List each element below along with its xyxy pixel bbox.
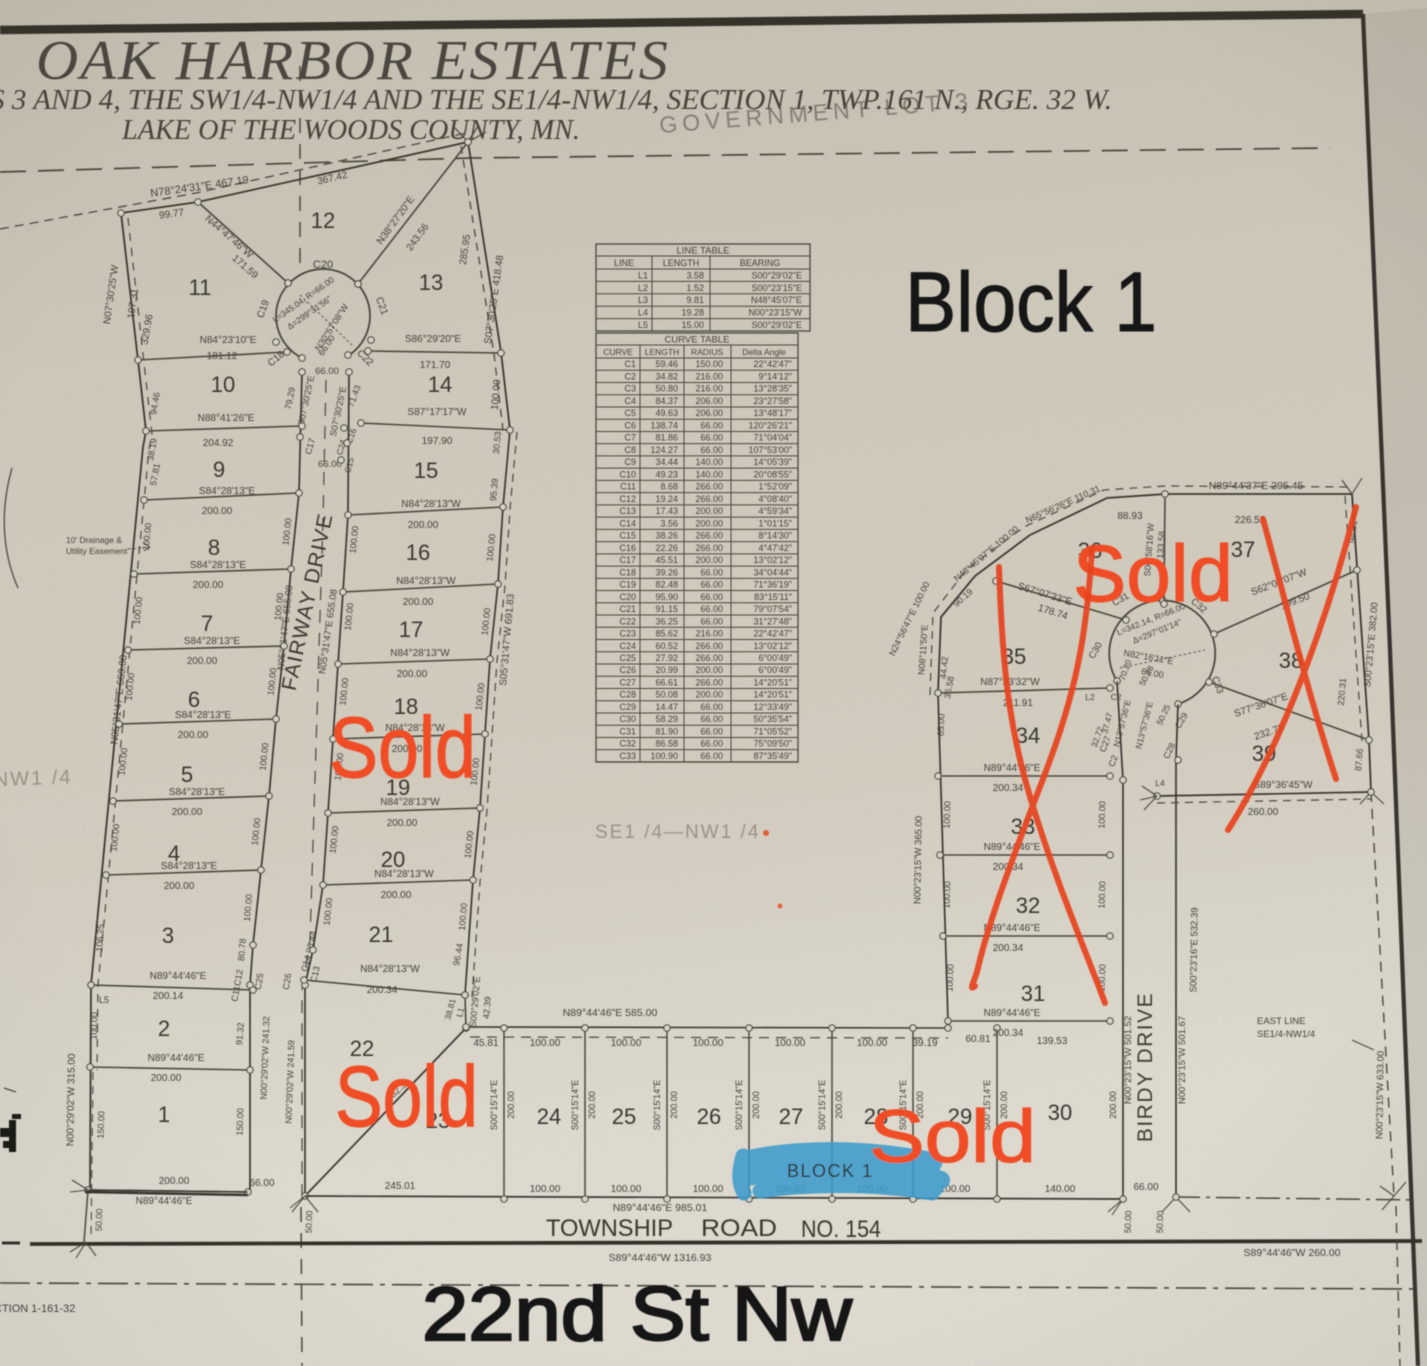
svg-text:S00°15'14"E: S00°15'14"E	[570, 1080, 580, 1131]
svg-text:81.86: 81.86	[655, 433, 678, 443]
svg-text:150.00: 150.00	[235, 1108, 246, 1136]
svg-text:15.00: 15.00	[681, 320, 704, 330]
svg-text:106.25: 106.25	[94, 924, 105, 952]
svg-text:S87°17'17"W: S87°17'17"W	[408, 407, 467, 418]
svg-text:8.68: 8.68	[660, 482, 678, 492]
svg-text:124.27: 124.27	[650, 445, 678, 455]
svg-text:N00°23'15"W 633.00: N00°23'15"W 633.00	[1374, 1051, 1387, 1139]
svg-text:100.00: 100.00	[857, 1038, 888, 1049]
svg-text:66.00: 66.00	[700, 616, 723, 626]
svg-text:260.00: 260.00	[1248, 807, 1279, 818]
svg-text:200.00: 200.00	[1108, 1091, 1118, 1119]
svg-text:150.00: 150.00	[695, 359, 723, 369]
svg-text:N84°23'10"E: N84°23'10"E	[200, 335, 257, 346]
svg-text:266.00: 266.00	[695, 543, 723, 553]
svg-text:N87°33'32"W: N87°33'32"W	[980, 677, 1040, 688]
svg-text:S89°44'46"W 260.00: S89°44'46"W 260.00	[1244, 1247, 1341, 1259]
svg-text:10' Drainage &: 10' Drainage &	[66, 535, 122, 545]
svg-text:N48°45'07"E: N48°45'07"E	[751, 295, 802, 305]
svg-text:N84°28'13"W: N84°28'13"W	[396, 576, 456, 587]
svg-text:S84°28'13"E: S84°28'13"E	[184, 636, 240, 647]
svg-text:C12: C12	[619, 494, 636, 504]
svg-text:6: 6	[188, 687, 200, 712]
svg-text:266.00: 266.00	[695, 494, 723, 504]
svg-text:86.58: 86.58	[655, 739, 678, 749]
svg-text:42.39: 42.39	[481, 996, 493, 1019]
svg-text:91.15: 91.15	[655, 604, 678, 614]
svg-text:N84°28'13"W: N84°28'13"W	[360, 964, 420, 975]
svg-text:12: 12	[311, 208, 335, 233]
svg-text:216.00: 216.00	[695, 384, 723, 394]
svg-text:N84°28'13"W: N84°28'13"W	[401, 499, 461, 510]
svg-text:140.00: 140.00	[1045, 1184, 1076, 1195]
svg-text:BLOCK 1: BLOCK 1	[787, 1161, 874, 1181]
svg-text:27: 27	[779, 1104, 803, 1129]
svg-text:200.00: 200.00	[834, 1091, 844, 1119]
svg-text:66.00: 66.00	[315, 366, 339, 377]
svg-text:200.00: 200.00	[408, 520, 439, 531]
svg-text:S00°29'02"E: S00°29'02"E	[751, 320, 802, 330]
svg-text:85.62: 85.62	[655, 629, 678, 639]
svg-text:N89°44'46"E 985.01: N89°44'46"E 985.01	[613, 1202, 708, 1214]
svg-text:L3: L3	[638, 295, 648, 305]
svg-text:266.00: 266.00	[695, 531, 723, 541]
svg-text:20.99: 20.99	[655, 665, 678, 675]
svg-text:66.61: 66.61	[655, 677, 678, 687]
svg-text:C23: C23	[619, 629, 636, 639]
svg-text:C20: C20	[313, 259, 333, 271]
svg-text:66.00: 66.00	[700, 726, 723, 736]
svg-text:49.63: 49.63	[655, 408, 678, 418]
svg-text:31°27'48": 31°27'48"	[753, 616, 792, 626]
svg-text:82.48: 82.48	[655, 580, 678, 590]
svg-text:200.00: 200.00	[751, 1091, 761, 1119]
svg-text:Sold: Sold	[869, 1095, 1036, 1178]
svg-text:10: 10	[211, 372, 235, 397]
svg-text:N88°41'26"E: N88°41'26"E	[198, 413, 255, 424]
svg-text:14°20'51": 14°20'51"	[753, 677, 792, 687]
svg-text:C27: C27	[619, 677, 636, 687]
svg-text:50.00: 50.00	[304, 1210, 315, 1233]
svg-text:C4: C4	[624, 396, 636, 406]
svg-text:L4: L4	[1155, 778, 1165, 788]
svg-text:200.00: 200.00	[187, 656, 218, 667]
svg-text:14°20'51": 14°20'51"	[753, 690, 792, 700]
svg-text:N89°44'46"E: N89°44'46"E	[984, 842, 1041, 853]
svg-text:L4: L4	[638, 308, 648, 318]
svg-text:66.00: 66.00	[700, 592, 723, 602]
svg-text:C2: C2	[1111, 692, 1122, 702]
svg-text:Delta Angle: Delta Angle	[742, 347, 786, 357]
svg-text:LENGTH: LENGTH	[663, 258, 700, 268]
svg-text:9.81: 9.81	[686, 295, 704, 305]
svg-text:138.74: 138.74	[650, 420, 678, 430]
svg-text:1°52'09": 1°52'09"	[758, 482, 792, 492]
svg-text:4°59'34": 4°59'34"	[758, 506, 792, 516]
svg-text:66.00: 66.00	[700, 702, 723, 712]
svg-text:200.00: 200.00	[506, 1091, 516, 1119]
svg-text:C13: C13	[619, 506, 636, 516]
svg-text:C2: C2	[624, 371, 636, 381]
svg-text:N89°44'46"E 585.00: N89°44'46"E 585.00	[563, 1007, 658, 1019]
svg-text:9: 9	[213, 457, 225, 482]
svg-text:S00°15'14"E: S00°15'14"E	[489, 1080, 499, 1131]
svg-text:22°42'47": 22°42'47"	[753, 629, 792, 639]
svg-text:S00°15'14"E: S00°15'14"E	[652, 1080, 662, 1131]
svg-text:C30: C30	[619, 714, 636, 724]
svg-text:22nd St Nw: 22nd St Nw	[422, 1272, 853, 1357]
svg-text:NW1 /4: NW1 /4	[0, 766, 73, 791]
svg-text:C14: C14	[619, 518, 636, 528]
svg-text:S00°23'15"E: S00°23'15"E	[751, 283, 802, 293]
svg-text:C3: C3	[624, 384, 636, 394]
svg-text:8: 8	[208, 535, 220, 560]
svg-text:S84°28'13"E: S84°28'13"E	[199, 486, 255, 497]
svg-text:245.01: 245.01	[385, 1181, 416, 1192]
svg-text:9°14'12": 9°14'12"	[758, 371, 792, 381]
svg-text:200.34: 200.34	[993, 943, 1024, 954]
svg-text:Sold: Sold	[1073, 529, 1233, 618]
svg-text:N84°28'13"W: N84°28'13"W	[374, 869, 434, 880]
svg-text:200.00: 200.00	[695, 506, 723, 516]
svg-text:6°00'49": 6°00'49"	[758, 665, 792, 675]
svg-text:C24: C24	[619, 641, 636, 651]
svg-text:95.90: 95.90	[655, 592, 678, 602]
svg-text:ROAD: ROAD	[701, 1215, 777, 1242]
svg-text:C11: C11	[620, 482, 636, 492]
svg-text:200.14: 200.14	[153, 991, 184, 1002]
svg-text:81.90: 81.90	[655, 726, 678, 736]
svg-text:206.00: 206.00	[695, 396, 723, 406]
svg-text:59.46: 59.46	[655, 359, 678, 369]
svg-text:216.00: 216.00	[695, 371, 723, 381]
svg-text:181.12: 181.12	[207, 351, 238, 362]
svg-text:60.81: 60.81	[965, 1034, 990, 1045]
svg-text:66.00: 66.00	[700, 433, 723, 443]
svg-text:66.00: 66.00	[1133, 1182, 1158, 1193]
svg-text:140.00: 140.00	[695, 469, 723, 479]
svg-text:C26: C26	[619, 665, 636, 675]
svg-text:17: 17	[399, 617, 423, 642]
svg-text:200.00: 200.00	[397, 669, 428, 680]
svg-text:200.00: 200.00	[387, 818, 418, 829]
svg-text:3.56: 3.56	[660, 518, 678, 528]
svg-text:34.44: 34.44	[655, 457, 678, 467]
svg-text:C8: C8	[624, 445, 636, 455]
svg-text:OAK HARBOR ESTATES: OAK HARBOR ESTATES	[36, 30, 670, 92]
svg-text:S84°28'13"E: S84°28'13"E	[175, 710, 231, 721]
svg-text:3.58: 3.58	[686, 270, 704, 280]
svg-text:13°02'12": 13°02'12"	[753, 641, 792, 651]
svg-text:71°04'04": 71°04'04"	[753, 433, 792, 443]
svg-text:87°35'49": 87°35'49"	[753, 751, 792, 761]
svg-text:12°33'49": 12°33'49"	[753, 702, 792, 712]
svg-text:L2: L2	[638, 283, 648, 293]
svg-text:20°08'55": 20°08'55"	[753, 469, 792, 479]
svg-text:5: 5	[181, 762, 193, 787]
svg-text:100.00: 100.00	[89, 1012, 100, 1040]
svg-text:200.00: 200.00	[695, 555, 723, 565]
svg-text:S00°15'14"E: S00°15'14"E	[734, 1080, 744, 1131]
svg-text:79°07'54": 79°07'54"	[753, 604, 792, 614]
svg-text:66.00: 66.00	[700, 567, 723, 577]
svg-text:Sold: Sold	[329, 700, 476, 796]
svg-text:200.00: 200.00	[403, 597, 434, 608]
svg-text:S84°28'13"E: S84°28'13"E	[161, 861, 217, 872]
svg-text:Block 1: Block 1	[905, 255, 1157, 349]
svg-text:200.00: 200.00	[172, 807, 203, 818]
svg-text:39.26: 39.26	[655, 567, 678, 577]
svg-text:83°15'11": 83°15'11"	[754, 592, 792, 602]
svg-text:23°27'58": 23°27'58"	[753, 396, 792, 406]
svg-text:200.00: 200.00	[669, 1091, 679, 1119]
svg-text:100.00: 100.00	[530, 1038, 561, 1049]
svg-text:50.00: 50.00	[1123, 1210, 1134, 1233]
svg-text:C5: C5	[624, 408, 636, 418]
svg-text:49.23: 49.23	[655, 469, 678, 479]
svg-text:266.00: 266.00	[695, 677, 723, 687]
svg-text:21: 21	[369, 922, 393, 947]
svg-text:66.00: 66.00	[700, 420, 723, 430]
svg-text:CTION 1-161-32: CTION 1-161-32	[0, 1303, 75, 1315]
svg-text:N89°44'46"E: N89°44'46"E	[984, 1008, 1041, 1019]
svg-text:N89°44'37"E 295.45: N89°44'37"E 295.45	[1209, 480, 1304, 492]
svg-text:S00°15'14"E: S00°15'14"E	[817, 1080, 827, 1131]
svg-text:C18: C18	[619, 567, 636, 577]
svg-text:17.43: 17.43	[655, 506, 678, 516]
svg-text:31: 31	[1021, 981, 1045, 1006]
svg-text:S84°28'13"E: S84°28'13"E	[190, 560, 246, 571]
svg-text:80.78: 80.78	[236, 938, 248, 961]
svg-text:50°35'54": 50°35'54"	[753, 714, 792, 724]
svg-text:66.00: 66.00	[700, 604, 723, 614]
svg-text:S89°36'45"W: S89°36'45"W	[1254, 780, 1313, 791]
svg-text:N00°23'15"W 501.52: N00°23'15"W 501.52	[1123, 1016, 1134, 1104]
svg-text:266.00: 266.00	[695, 482, 723, 492]
svg-text:88.93: 88.93	[1117, 511, 1142, 522]
svg-text:L5: L5	[99, 995, 109, 1005]
svg-text:22°42'47": 22°42'47"	[753, 359, 792, 369]
svg-text:200.00: 200.00	[193, 580, 224, 591]
svg-text:3: 3	[162, 923, 174, 948]
svg-text:11: 11	[189, 275, 212, 300]
svg-text:15: 15	[414, 458, 438, 483]
svg-text:C15: C15	[619, 531, 636, 541]
svg-text:1.52: 1.52	[686, 283, 704, 293]
svg-text:200.00: 200.00	[695, 518, 723, 528]
svg-text:C10: C10	[619, 469, 636, 479]
svg-text:N89°44'46"E: N89°44'46"E	[984, 763, 1041, 774]
svg-text:EAST LINE: EAST LINE	[1257, 1016, 1305, 1027]
svg-text:60.52: 60.52	[655, 641, 678, 651]
svg-text:N89°44'46"E: N89°44'46"E	[150, 971, 207, 982]
svg-text:204.92: 204.92	[203, 438, 234, 449]
svg-text:19.28: 19.28	[681, 308, 704, 318]
svg-text:26: 26	[697, 1104, 721, 1129]
svg-text:200.00: 200.00	[695, 665, 723, 675]
svg-text:7: 7	[201, 611, 213, 636]
svg-text:45.81: 45.81	[473, 1038, 498, 1049]
svg-text:139.53: 139.53	[1037, 1036, 1068, 1047]
svg-text:1°01'15": 1°01'15"	[758, 518, 792, 528]
svg-text:6°00'49": 6°00'49"	[758, 653, 792, 663]
svg-text:S00°23'16"E 532.39: S00°23'16"E 532.39	[1188, 907, 1200, 992]
svg-text:100.00: 100.00	[611, 1184, 642, 1195]
svg-text:N89°44'46"E: N89°44'46"E	[136, 1196, 193, 1207]
svg-text:LINE TABLE: LINE TABLE	[677, 246, 730, 257]
svg-text:RADIUS: RADIUS	[691, 347, 723, 357]
svg-text:27.92: 27.92	[655, 653, 678, 663]
svg-text:25: 25	[612, 1104, 636, 1129]
svg-text:TOWNSHIP: TOWNSHIP	[546, 1215, 673, 1242]
svg-text:SE1/4-NW1/4: SE1/4-NW1/4	[1257, 1029, 1315, 1040]
svg-text:200.00: 200.00	[159, 1176, 190, 1187]
svg-text:SE1 /4—NW1 /4: SE1 /4—NW1 /4	[595, 822, 760, 843]
svg-text:C29: C29	[619, 702, 636, 712]
svg-text:N00°23'15"W: N00°23'15"W	[748, 308, 802, 318]
svg-text:100.00: 100.00	[942, 881, 953, 909]
svg-text:N84°28'13"W: N84°28'13"W	[390, 648, 450, 659]
svg-text:13: 13	[419, 270, 443, 295]
svg-text:39.19: 39.19	[912, 1038, 937, 1049]
svg-text:C16: C16	[619, 543, 636, 553]
svg-text:C20: C20	[619, 592, 636, 602]
svg-text:30: 30	[1048, 1100, 1072, 1125]
svg-text:14.47: 14.47	[655, 702, 678, 712]
svg-text:13°48'17": 13°48'17"	[753, 408, 792, 418]
svg-text:30.53: 30.53	[491, 431, 503, 454]
svg-text:66.00: 66.00	[700, 739, 723, 749]
svg-text:C9: C9	[624, 457, 636, 467]
svg-text:L2: L2	[1085, 692, 1095, 702]
svg-text:107°53'00": 107°53'00"	[748, 445, 792, 455]
svg-text:16: 16	[406, 540, 430, 565]
svg-text:37: 37	[1231, 537, 1255, 562]
svg-text:100.90: 100.90	[650, 751, 678, 761]
svg-text:84.37: 84.37	[655, 396, 678, 406]
svg-text:34°04'44": 34°04'44"	[753, 567, 792, 577]
svg-text:22.26: 22.26	[655, 543, 678, 553]
svg-text:100.00: 100.00	[693, 1038, 724, 1049]
svg-text:NO. 154: NO. 154	[801, 1216, 881, 1243]
svg-text:200.00: 200.00	[178, 730, 209, 741]
svg-text:216.00: 216.00	[695, 629, 723, 639]
svg-text:S00°29'02"E: S00°29'02"E	[751, 270, 802, 280]
svg-text:58.29: 58.29	[655, 714, 678, 724]
svg-text:C7: C7	[624, 433, 636, 443]
svg-text:200.00: 200.00	[164, 881, 195, 892]
svg-text:71°36'19": 71°36'19"	[753, 580, 792, 590]
svg-text:171.70: 171.70	[420, 360, 451, 371]
svg-text:200.34: 200.34	[993, 1028, 1024, 1039]
svg-text:C22: C22	[619, 616, 636, 626]
svg-text:2: 2	[158, 1016, 170, 1041]
svg-text:100.00: 100.00	[530, 1184, 561, 1195]
svg-text:C17: C17	[619, 555, 636, 565]
svg-text:206.00: 206.00	[695, 408, 723, 418]
svg-text:LAKE OF THE WOODS COUNTY, MN.: LAKE OF THE WOODS COUNTY, MN.	[121, 114, 580, 146]
svg-text:71°05'52": 71°05'52"	[753, 726, 792, 736]
svg-text:13°28'35": 13°28'35"	[753, 384, 792, 394]
svg-text:100.00: 100.00	[775, 1038, 806, 1049]
svg-text:N00°23'15"W 365.00: N00°23'15"W 365.00	[912, 816, 925, 904]
svg-text:91.32: 91.32	[234, 1022, 246, 1045]
svg-text:75°09'50": 75°09'50"	[753, 739, 792, 749]
svg-text:197.90: 197.90	[422, 436, 453, 447]
svg-text:14: 14	[428, 372, 452, 397]
svg-text:CURVE TABLE: CURVE TABLE	[665, 335, 730, 346]
svg-text:C31: C31	[619, 726, 636, 736]
svg-text:4°08'40": 4°08'40"	[758, 494, 792, 504]
svg-text:200.00: 200.00	[202, 506, 233, 517]
svg-text:100.00: 100.00	[611, 1038, 642, 1049]
svg-text:95.39: 95.39	[488, 478, 500, 501]
svg-text:65.00: 65.00	[936, 713, 947, 736]
svg-text:200.00: 200.00	[151, 1073, 182, 1084]
svg-text:36.25: 36.25	[655, 616, 678, 626]
svg-text:S86°29'20"E: S86°29'20"E	[405, 334, 461, 345]
svg-text:C32: C32	[619, 739, 636, 749]
svg-text:66.00: 66.00	[249, 1178, 274, 1189]
svg-text:N84°28'13"W: N84°28'13"W	[380, 797, 440, 808]
svg-text:4°47'42": 4°47'42"	[758, 543, 792, 553]
svg-text:24: 24	[537, 1104, 561, 1129]
svg-text:266.00: 266.00	[695, 653, 723, 663]
svg-text:C33: C33	[619, 751, 636, 761]
svg-text:66.00: 66.00	[700, 714, 723, 724]
svg-text:13°02'12": 13°02'12"	[753, 555, 792, 565]
svg-text:C28: C28	[619, 690, 636, 700]
svg-text:S84°28'13"E: S84°28'13"E	[169, 787, 225, 798]
svg-text:N89°44'46"E: N89°44'46"E	[148, 1053, 205, 1064]
svg-text:S89°44'46"W 1316.93: S89°44'46"W 1316.93	[609, 1252, 712, 1264]
svg-text:C19: C19	[619, 580, 636, 590]
svg-text:34.82: 34.82	[655, 371, 678, 381]
svg-text:66.00: 66.00	[700, 445, 723, 455]
svg-text:45.51: 45.51	[655, 555, 678, 565]
svg-text:266.00: 266.00	[695, 641, 723, 651]
svg-text:66.00: 66.00	[700, 751, 723, 761]
svg-text:BEARING: BEARING	[740, 258, 781, 268]
svg-text:200.34: 200.34	[993, 783, 1024, 794]
svg-text:Sold: Sold	[335, 1049, 478, 1145]
svg-text:38.26: 38.26	[655, 531, 678, 541]
svg-text:200.00: 200.00	[587, 1091, 597, 1119]
svg-text:BIRDY DRIVE: BIRDY DRIVE	[1134, 992, 1157, 1142]
svg-text:87.66: 87.66	[1353, 748, 1365, 771]
svg-text:100.00: 100.00	[942, 801, 953, 829]
svg-text:32: 32	[1016, 893, 1040, 918]
svg-text:140.00: 140.00	[695, 457, 723, 467]
svg-text:8°14'30": 8°14'30"	[758, 531, 792, 541]
svg-text:L1: L1	[638, 270, 648, 280]
svg-text:CURVE: CURVE	[603, 347, 633, 357]
svg-text:100.00: 100.00	[945, 964, 956, 992]
svg-text:C21: C21	[619, 604, 636, 614]
svg-text:19.24: 19.24	[655, 494, 678, 504]
svg-text:200.34: 200.34	[367, 985, 398, 996]
svg-text:14°05'39": 14°05'39"	[753, 457, 792, 467]
svg-text:N00°29'02"W 315.00: N00°29'02"W 315.00	[65, 1053, 78, 1146]
svg-text:LENGTH: LENGTH	[645, 347, 679, 357]
svg-text:L5: L5	[638, 320, 648, 330]
svg-text:150.00: 150.00	[96, 1111, 107, 1139]
svg-text:1: 1	[158, 1102, 170, 1127]
svg-text:LINE: LINE	[614, 258, 634, 268]
svg-text:50.08: 50.08	[655, 690, 678, 700]
svg-text:C25: C25	[619, 653, 636, 663]
svg-text:100.00: 100.00	[1097, 881, 1108, 909]
